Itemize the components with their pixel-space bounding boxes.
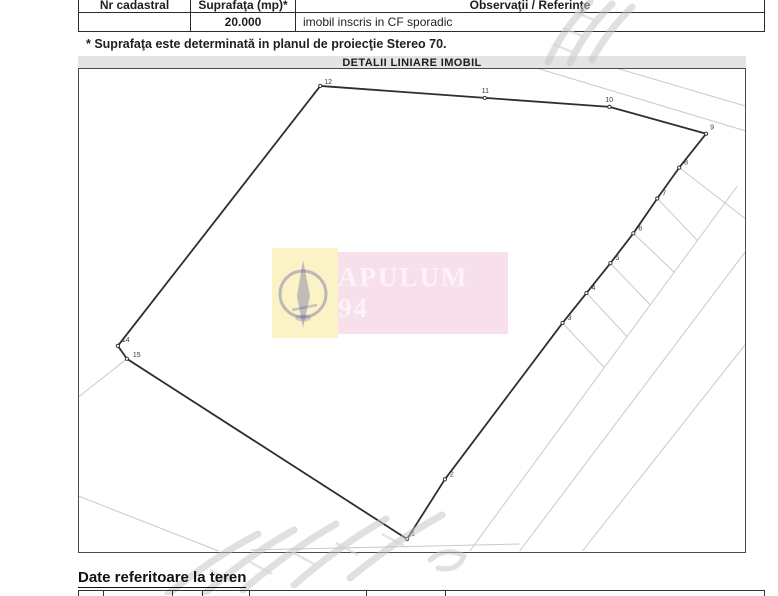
stereo70-footnote: * Suprafaţa este determinată in planul d… bbox=[86, 37, 447, 51]
teren-table-top bbox=[78, 590, 765, 596]
svg-text:4: 4 bbox=[591, 285, 595, 292]
table-divider bbox=[78, 591, 79, 596]
cell-observatii: imobil inscris in CF sporadic bbox=[295, 13, 765, 32]
header-col-nr-cadastral: Nr cadastral bbox=[78, 0, 190, 13]
table-divider bbox=[103, 591, 104, 596]
header-table: Nr cadastral Suprafaţa (mp)* Observaţii … bbox=[78, 0, 765, 32]
svg-text:10: 10 bbox=[605, 97, 613, 104]
svg-text:15: 15 bbox=[133, 352, 141, 359]
svg-text:5: 5 bbox=[615, 255, 619, 262]
svg-text:2: 2 bbox=[450, 471, 454, 478]
compass-pen-logo-icon bbox=[272, 248, 338, 338]
svg-text:8: 8 bbox=[684, 160, 688, 167]
svg-text:11: 11 bbox=[482, 88, 489, 95]
cell-suprafata: 20.000 bbox=[190, 13, 295, 32]
table-divider bbox=[366, 591, 367, 596]
header-col-observatii: Observaţii / Referinţe bbox=[295, 0, 765, 13]
stamp-company-box: APULUM 94 bbox=[338, 252, 508, 334]
header-col-suprafata: Suprafaţa (mp)* bbox=[190, 0, 295, 13]
svg-text:1: 1 bbox=[411, 531, 415, 538]
table-divider bbox=[249, 591, 250, 596]
table-divider bbox=[445, 591, 446, 596]
stamp-logo-box bbox=[272, 248, 338, 338]
cell-nr-cadastral bbox=[78, 13, 190, 32]
scanned-cadastral-document: { "document": { "header_table": { "colum… bbox=[0, 0, 778, 595]
table-divider bbox=[202, 591, 203, 596]
svg-text:14: 14 bbox=[122, 337, 130, 344]
svg-text:7: 7 bbox=[662, 190, 666, 197]
svg-text:12: 12 bbox=[324, 79, 332, 86]
section-heading-teren: Date referitoare la teren bbox=[78, 569, 246, 588]
svg-text:3: 3 bbox=[568, 315, 572, 322]
table-divider bbox=[764, 591, 765, 596]
svg-text:9: 9 bbox=[710, 125, 714, 132]
stamp-company-text: APULUM 94 bbox=[338, 262, 508, 324]
table-divider bbox=[172, 591, 173, 596]
svg-text:6: 6 bbox=[638, 225, 642, 232]
